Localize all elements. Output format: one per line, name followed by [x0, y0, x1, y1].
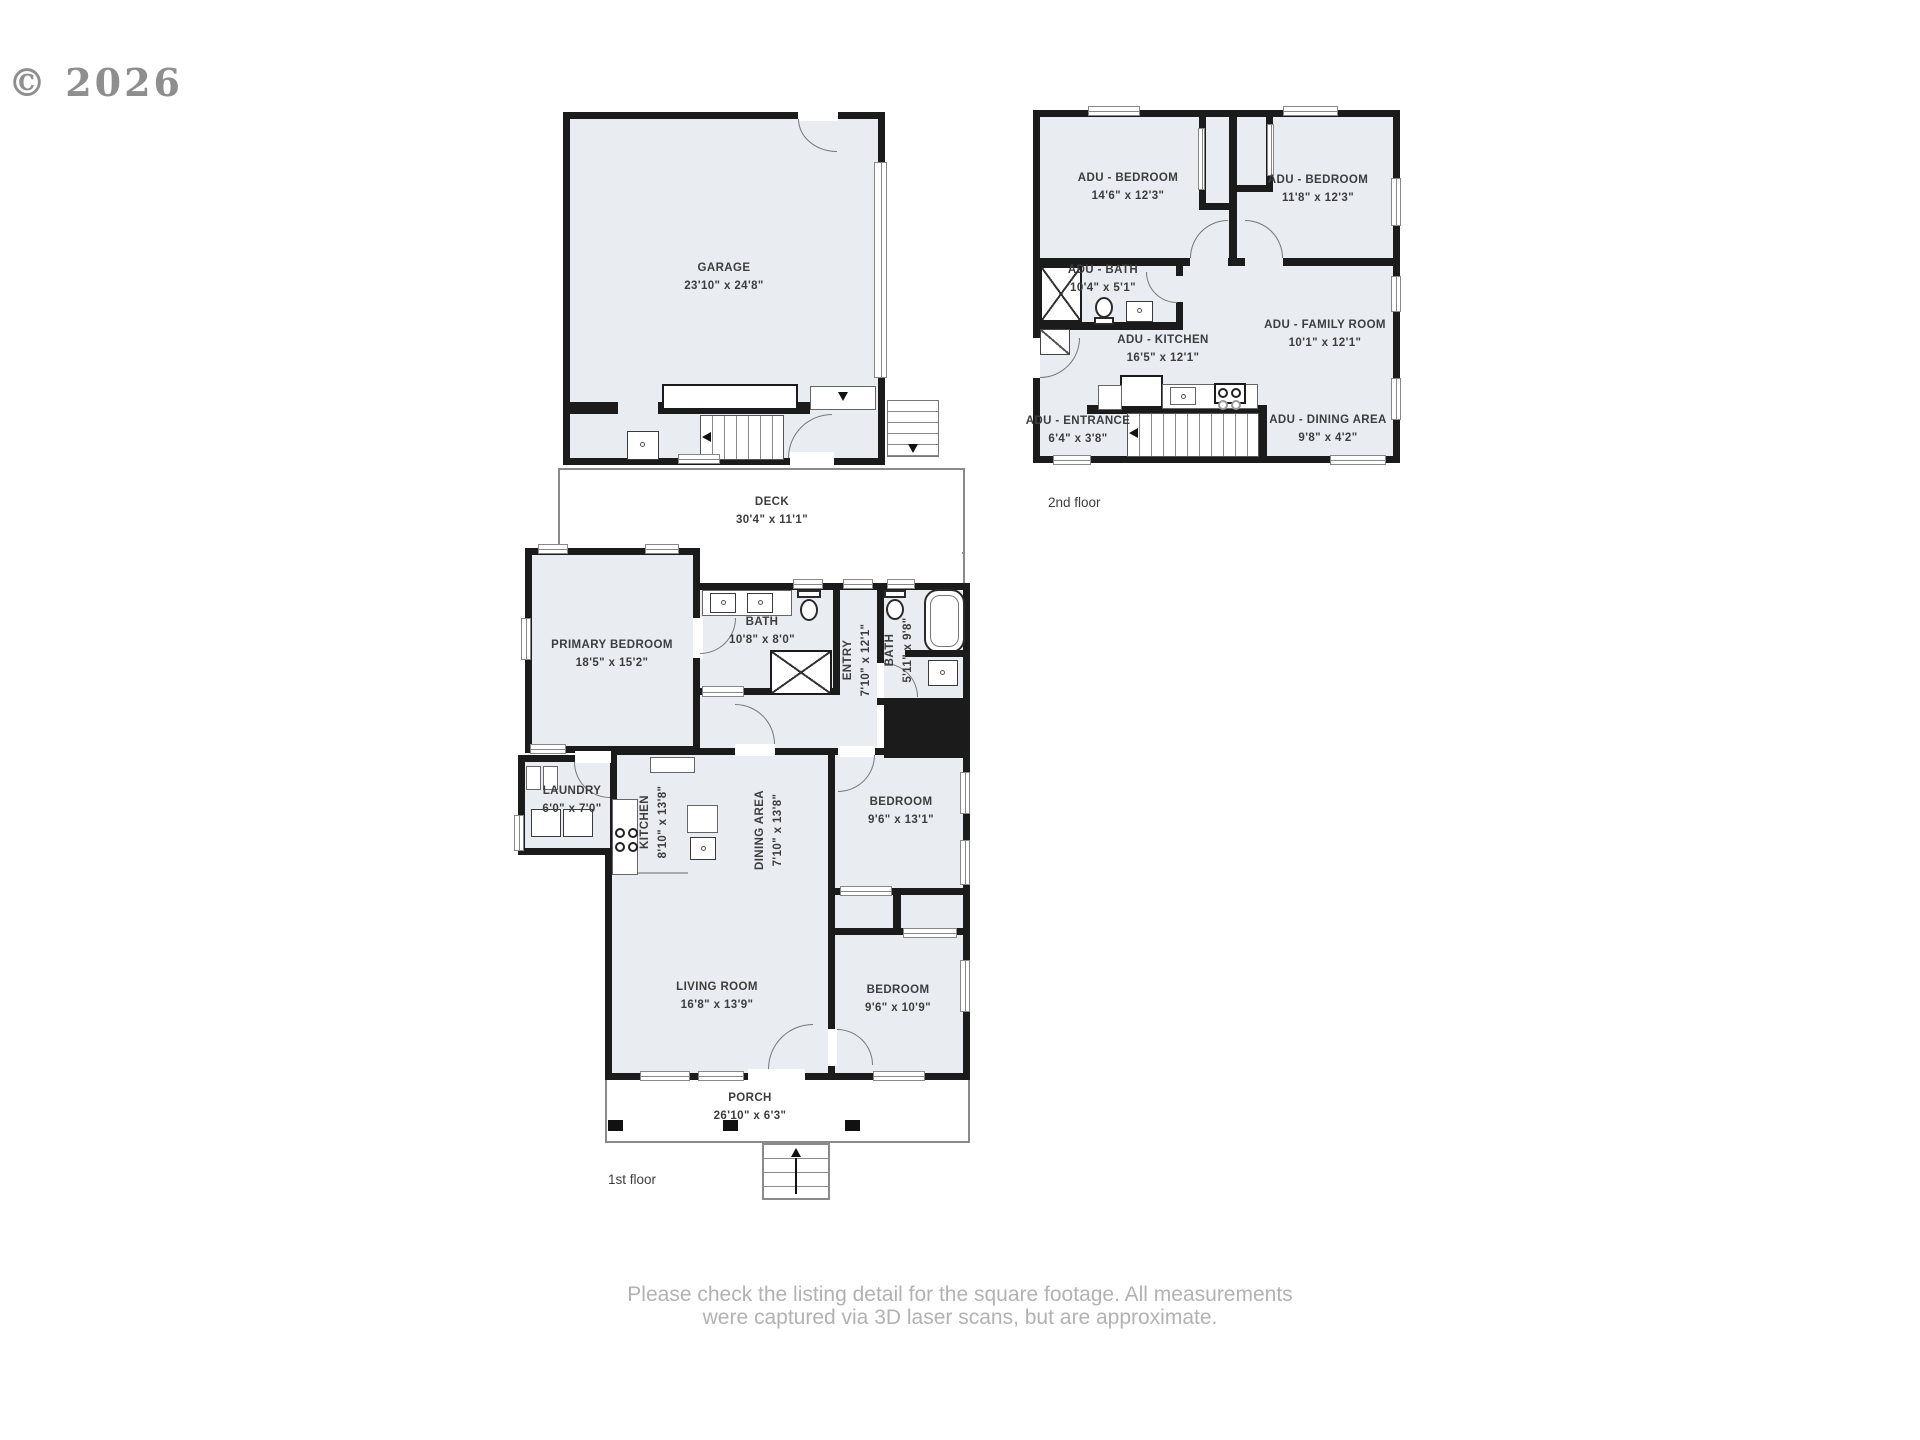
room-name: BATH	[882, 617, 900, 682]
sink-drain	[758, 600, 763, 605]
room-dims: 10'1" x 12'1"	[1264, 335, 1386, 353]
toilet-tank	[1094, 317, 1114, 325]
stove-burner-icon	[615, 828, 625, 838]
room-dims: 18'5" x 15'2"	[551, 655, 673, 673]
bathtub	[924, 589, 965, 653]
toilet-bowl	[1095, 297, 1113, 318]
room-name: DECK	[736, 494, 808, 512]
adu-bedroom-left-label: ADU - BEDROOM 14'6" x 12'3"	[1078, 170, 1178, 206]
bath-sliding-door	[702, 686, 744, 697]
adu-bedroom-right-label: ADU - BEDROOM 11'8" x 12'3"	[1268, 172, 1368, 208]
room-name: GARAGE	[684, 260, 764, 278]
window	[1391, 378, 1401, 420]
disclaimer-line2: were captured via 3D laser scans, but ar…	[0, 1306, 1920, 1329]
porch-post	[845, 1120, 860, 1131]
sink-drain	[1137, 308, 1142, 313]
window	[645, 544, 679, 554]
garage-label: GARAGE 23'10" x 24'8"	[684, 260, 764, 296]
sink-drain	[701, 846, 706, 851]
primary-hall-door-opening	[735, 744, 775, 756]
stairs-left-arrow-icon	[1129, 428, 1138, 438]
room-name: PRIMARY BEDROOM	[551, 637, 673, 655]
stove-burner-icon	[1218, 388, 1228, 398]
entry-label: ENTRY 7'10" x 12'1"	[840, 624, 876, 697]
sink-drain	[721, 600, 726, 605]
closet-sliding-door	[840, 886, 892, 896]
porch-label: PORCH 26'10" x 6'3"	[714, 1090, 787, 1126]
room-dims: 30'4" x 11'1"	[736, 512, 808, 530]
room-dims: 10'8" x 8'0"	[729, 632, 795, 650]
room-dims: 9'8" x 4'2"	[1269, 430, 1387, 448]
stove-burner-icon	[1231, 400, 1241, 410]
room-name: ADU - ENTRANCE	[1026, 413, 1131, 431]
bedroom-lower-label: BEDROOM 9'6" x 10'9"	[865, 982, 931, 1018]
room-dims: 9'6" x 13'1"	[868, 812, 934, 830]
garage-workbench	[662, 384, 798, 410]
room-dims: 26'10" x 6'3"	[714, 1108, 787, 1126]
kitchen-label: KITCHEN 8'10" x 13'8"	[637, 786, 673, 859]
bedroom-upper-label: BEDROOM 9'6" x 13'1"	[868, 794, 934, 830]
counter-edge	[638, 872, 688, 874]
adu-wall	[1228, 258, 1245, 266]
room-name: ADU - BATH	[1068, 262, 1138, 280]
room-dims: 6'4" x 3'8"	[1026, 431, 1131, 449]
adu-bath-wall	[1176, 302, 1183, 328]
wall-mass	[884, 703, 970, 758]
adu-wall	[1283, 258, 1393, 266]
stairs-down-arrow-icon	[838, 392, 848, 401]
room-dims: 11'8" x 12'3"	[1268, 190, 1368, 208]
window	[1053, 455, 1091, 465]
room-name: ADU - KITCHEN	[1117, 332, 1208, 350]
adu-kitchen-label: ADU - KITCHEN 16'5" x 12'1"	[1117, 332, 1208, 368]
deck-seam	[691, 550, 962, 555]
window	[640, 1071, 690, 1081]
room-name: BEDROOM	[868, 794, 934, 812]
adu-bath-label: ADU - BATH 10'4" x 5'1"	[1068, 262, 1138, 298]
stairs-arrow-stem	[795, 1158, 797, 1194]
hall-closet	[770, 650, 832, 695]
window	[960, 960, 970, 1012]
room-dims: 7'10" x 12'1"	[858, 624, 876, 697]
adu-counter	[1098, 385, 1122, 410]
toilet-bowl	[800, 599, 818, 621]
window	[960, 840, 970, 885]
garage-vehicle-door	[874, 162, 887, 378]
room-name: ADU - DINING AREA	[1269, 412, 1387, 430]
porch-post	[608, 1120, 623, 1131]
window	[514, 815, 524, 851]
first-floor-label: 1st floor	[608, 1172, 656, 1187]
room-dims: 14'6" x 12'3"	[1078, 188, 1178, 206]
window	[887, 579, 915, 589]
window	[698, 1071, 744, 1081]
bath-main-label: BATH 10'8" x 8'0"	[729, 614, 795, 650]
window	[873, 1071, 925, 1081]
kitchen-island	[687, 805, 718, 833]
window	[530, 744, 566, 754]
window	[538, 544, 568, 554]
kitchen-cabinet	[650, 757, 695, 773]
window	[1391, 178, 1401, 226]
dining-area-label: DINING AREA 7'10" x 13'8"	[752, 790, 788, 870]
room-name: KITCHEN	[637, 786, 655, 859]
bath-hall-label: BATH 5'11" x 9'8"	[882, 617, 918, 682]
closet-door	[1267, 124, 1274, 176]
sink-drain	[1181, 394, 1186, 399]
window	[1391, 276, 1401, 312]
window	[521, 618, 531, 660]
front-door-opening	[748, 1069, 805, 1082]
closet-sliding-door	[903, 928, 957, 938]
window	[843, 579, 873, 589]
room-dims: 7'10" x 13'8"	[770, 790, 788, 870]
stove-burner-icon	[615, 842, 625, 852]
laundry-label: LAUNDRY 6'0" x 7'0"	[542, 783, 601, 819]
porch-area	[605, 1080, 970, 1143]
room-name: LAUNDRY	[542, 783, 601, 801]
closet-door	[1198, 128, 1205, 190]
room-dims: 6'0" x 7'0"	[542, 801, 601, 819]
window	[1330, 455, 1386, 465]
second-floor-label: 2nd floor	[1048, 495, 1101, 510]
room-name: BATH	[729, 614, 795, 632]
toilet-tank	[797, 590, 821, 598]
adu-bath-wall	[1176, 266, 1183, 276]
room-name: ADU - FAMILY ROOM	[1264, 317, 1386, 335]
room-name: LIVING ROOM	[676, 979, 758, 997]
room-dims: 16'5" x 12'1"	[1117, 350, 1208, 368]
window	[1283, 106, 1338, 116]
room-name: DINING AREA	[752, 790, 770, 870]
room-dims: 5'11" x 9'8"	[900, 617, 918, 682]
window	[793, 579, 823, 589]
room-dims: 16'8" x 13'9"	[676, 997, 758, 1015]
stove-burner-icon	[1231, 388, 1241, 398]
room-name: BEDROOM	[865, 982, 931, 1000]
room-dims: 23'10" x 24'8"	[684, 278, 764, 296]
stove-burner-icon	[1218, 400, 1228, 410]
bedroom-lower-door-opening	[828, 1029, 837, 1066]
room-dims: 9'6" x 10'9"	[865, 1000, 931, 1018]
disclaimer-text: Please check the listing detail for the …	[0, 1283, 1920, 1329]
adu-stair-wall	[1259, 405, 1267, 456]
stairs-left-arrow-icon	[702, 432, 711, 442]
deck-label: DECK 30'4" x 11'1"	[736, 494, 808, 530]
stairs-up-arrow-icon	[791, 1148, 801, 1157]
adu-fridge	[1120, 375, 1163, 408]
room-name: ADU - BEDROOM	[1268, 172, 1368, 190]
disclaimer-line1: Please check the listing detail for the …	[0, 1283, 1920, 1306]
laundry-cabinet	[526, 766, 541, 790]
primary-bedroom-label: PRIMARY BEDROOM 18'5" x 15'2"	[551, 637, 673, 673]
room-dims: 8'10" x 13'8"	[655, 786, 673, 859]
sink-drain	[940, 670, 945, 675]
room-dims: 10'4" x 5'1"	[1068, 280, 1138, 298]
room-name: ADU - BEDROOM	[1078, 170, 1178, 188]
window	[960, 772, 970, 814]
window	[1088, 106, 1140, 116]
adu-dining-area-label: ADU - DINING AREA 9'8" x 4'2"	[1269, 412, 1387, 448]
room-name: ENTRY	[840, 624, 858, 697]
garage-interior-wall	[570, 402, 618, 414]
toilet-tank	[884, 590, 906, 598]
sink-drain	[640, 442, 645, 447]
room-name: PORCH	[714, 1090, 787, 1108]
adu-entrance-label: ADU - ENTRANCE 6'4" x 3'8"	[1026, 413, 1131, 449]
adu-family-room-label: ADU - FAMILY ROOM 10'1" x 12'1"	[1264, 317, 1386, 353]
adu-closet-wall	[1199, 203, 1237, 210]
garage-window	[678, 454, 720, 464]
living-room-label: LIVING ROOM 16'8" x 13'9"	[676, 979, 758, 1015]
stairs-down-arrow-icon	[908, 444, 918, 453]
adu-entrance-door-opening	[1033, 338, 1040, 378]
copyright-watermark: © 2026	[8, 60, 183, 105]
adu-stairs	[1127, 413, 1259, 457]
closet-divider-wall	[893, 895, 901, 931]
